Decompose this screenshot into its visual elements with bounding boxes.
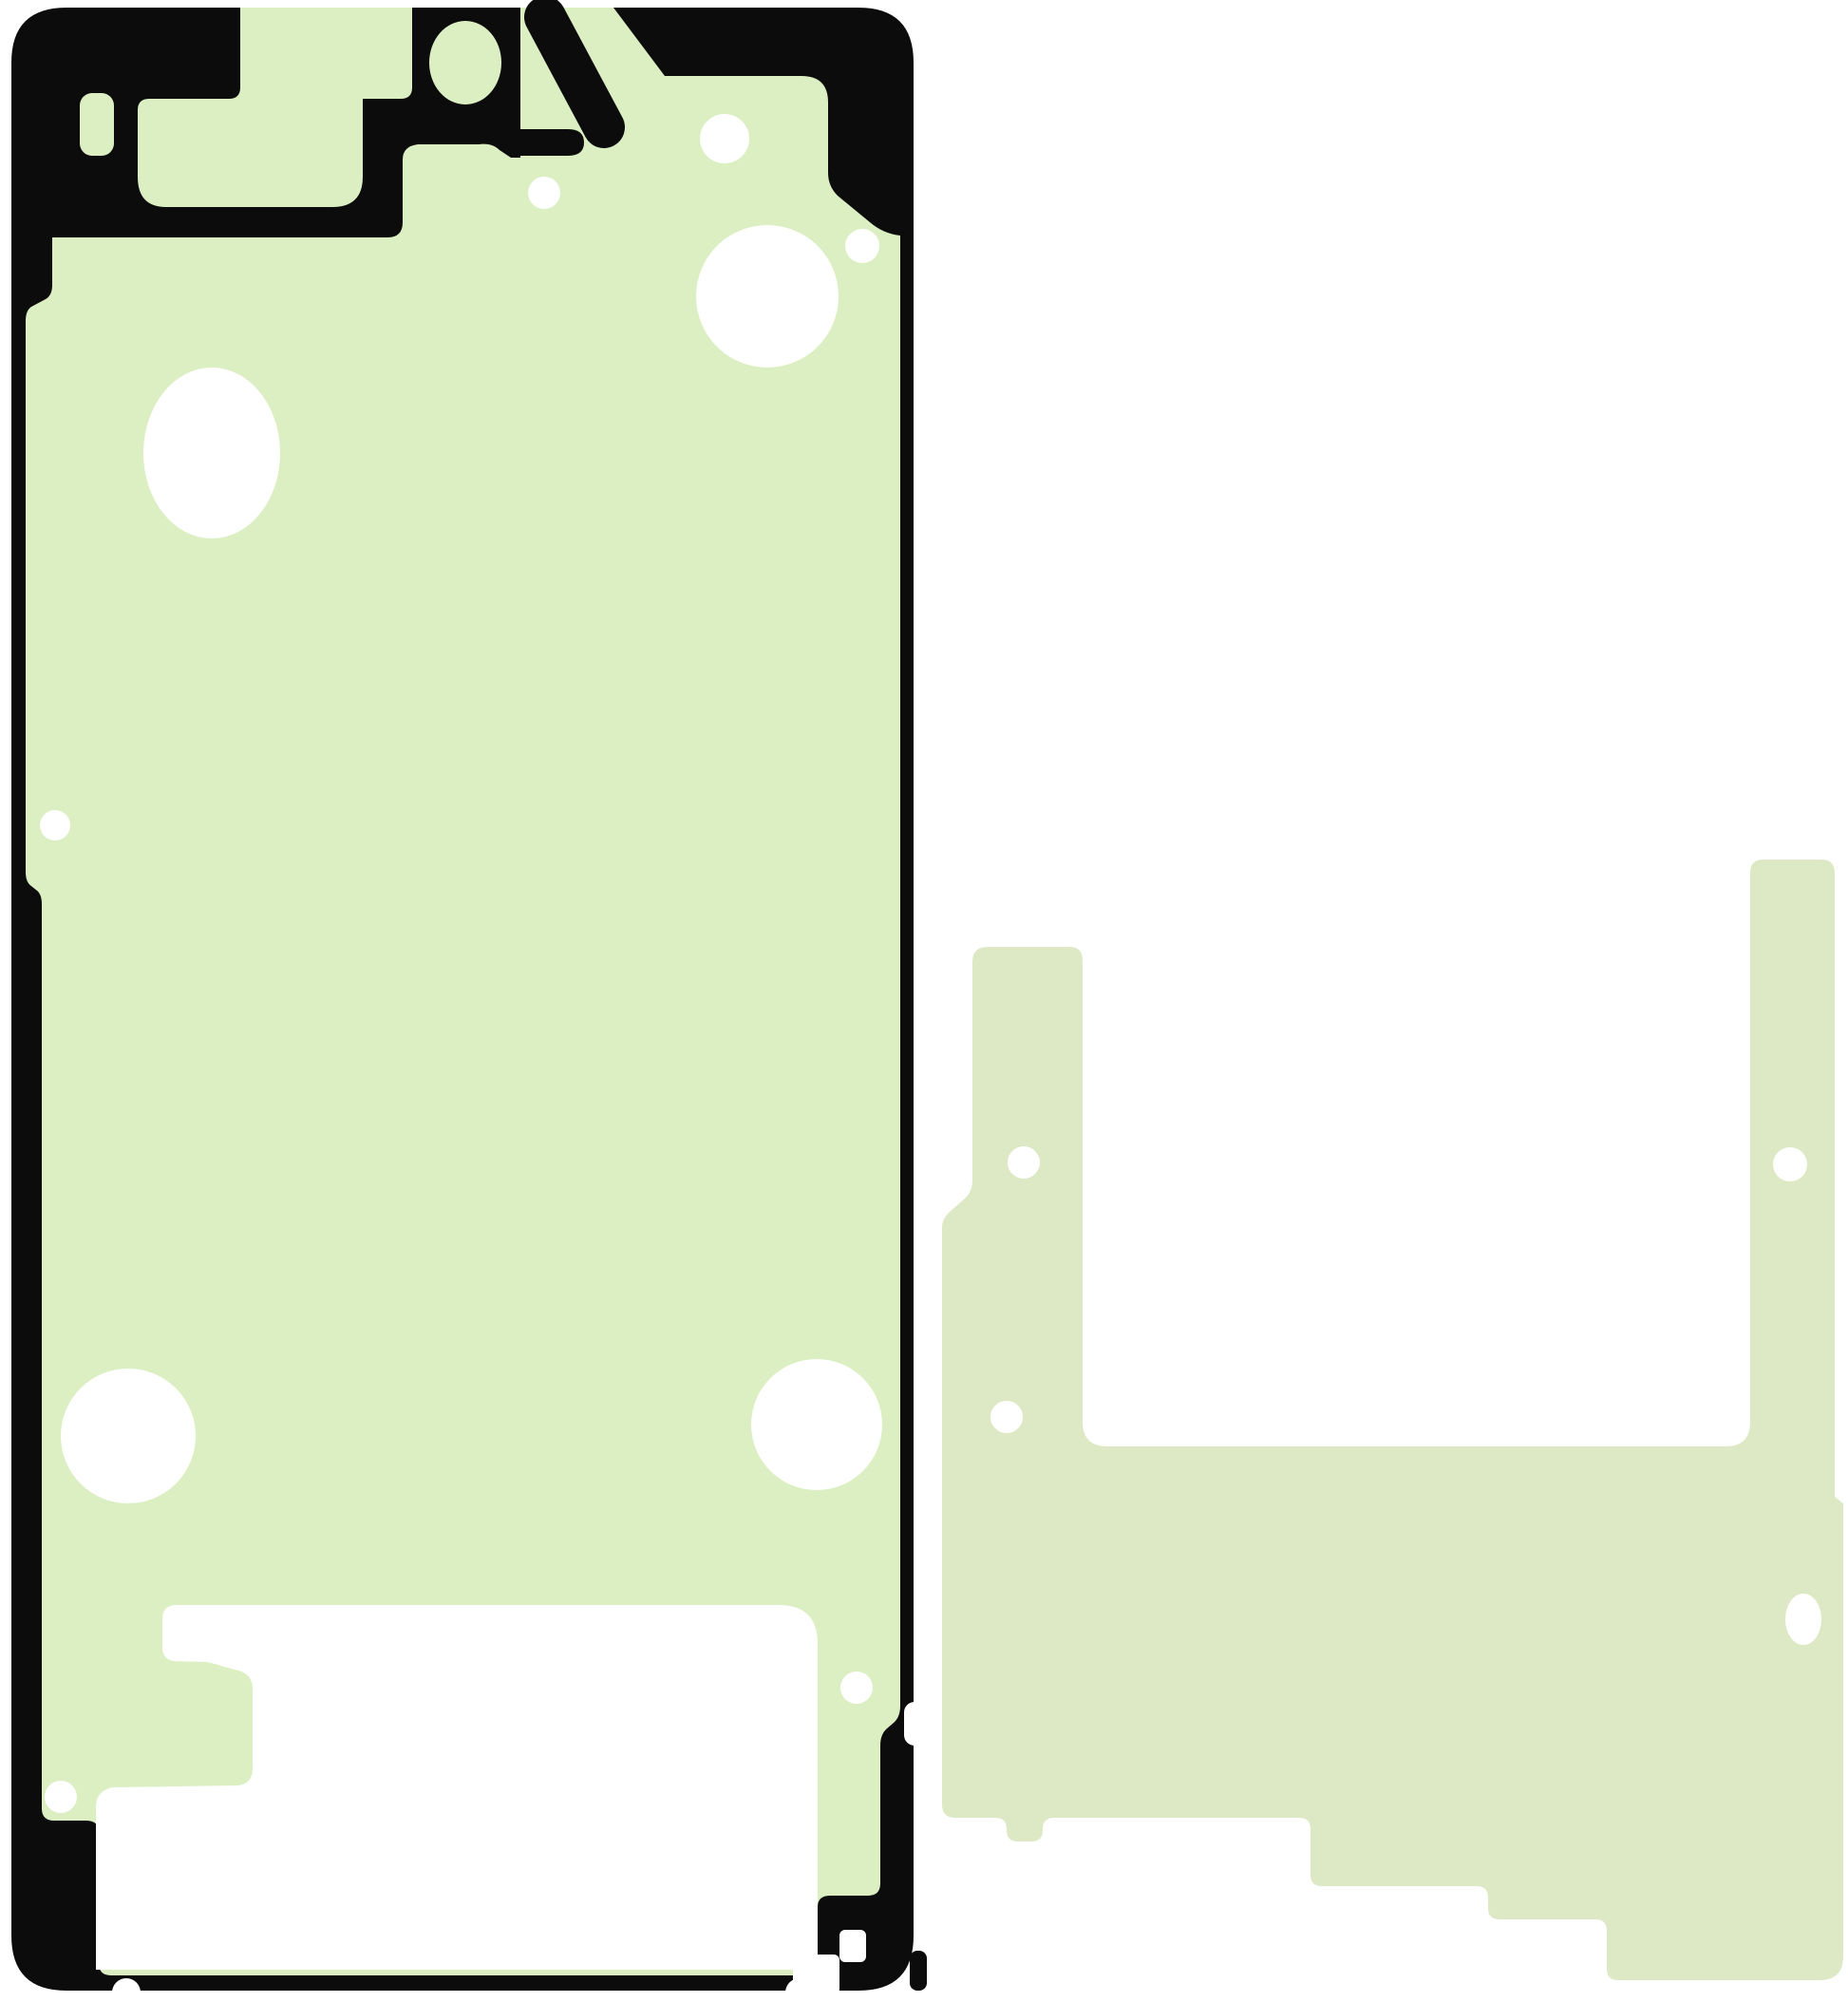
strip-hole [990, 1401, 1023, 1433]
sim-slot-window [80, 93, 114, 156]
strip-hole [1008, 1146, 1040, 1179]
screw-hole-cutout [840, 1671, 873, 1704]
strip-hole [1773, 1147, 1807, 1181]
screw-hole-cutout [528, 177, 560, 209]
screw-hole-cutout [61, 1369, 196, 1503]
strip-hole [1785, 1594, 1821, 1645]
adhesive-kit-illustration [0, 0, 1848, 2002]
product-photo-canvas [0, 0, 1848, 2002]
screw-hole-cutout [40, 810, 70, 840]
strip-liner-body [942, 859, 1843, 1980]
secondary-adhesive-strip [942, 859, 1843, 1980]
side-button-notch [904, 1702, 931, 1746]
bottom-release-window [96, 1605, 818, 1970]
camera-hole-window [429, 21, 501, 104]
screw-hole-cutout [696, 225, 839, 368]
screw-hole-cutout [845, 229, 879, 263]
sensor-cutout [143, 368, 280, 538]
corner-foot-tab [910, 1951, 927, 1991]
corner-step-notch [839, 1930, 866, 1962]
screw-hole-cutout [751, 1359, 882, 1490]
screw-hole-cutout [45, 1781, 77, 1813]
screw-hole-cutout [700, 114, 749, 163]
display-adhesive-frame [11, 8, 931, 2002]
side-tape-arm [513, 129, 584, 156]
